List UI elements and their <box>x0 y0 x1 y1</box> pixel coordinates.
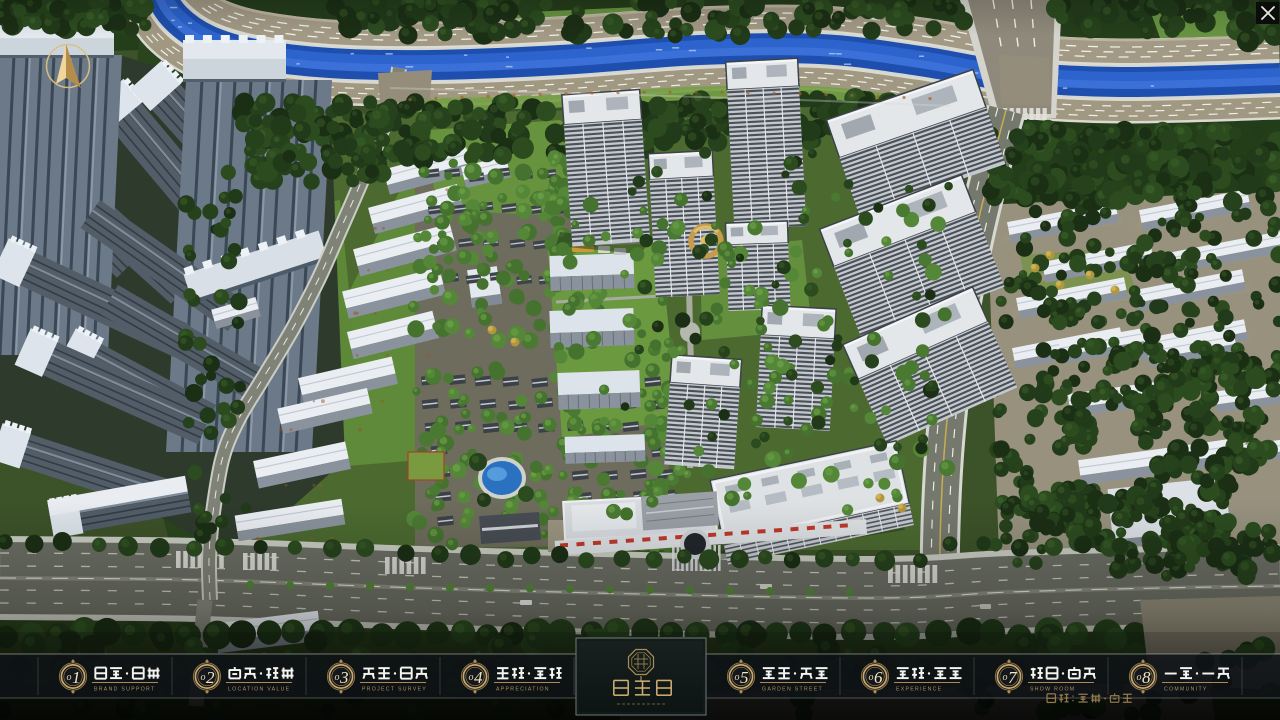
svg-text:1: 1 <box>72 668 81 687</box>
svg-text:GARDEN STREET: GARDEN STREET <box>762 687 823 693</box>
svg-text:o: o <box>869 672 874 683</box>
svg-text:APPRECIATION: APPRECIATION <box>496 687 550 693</box>
svg-text:BRAND SUPPORT: BRAND SUPPORT <box>94 687 155 693</box>
svg-text:COMMUNITY: COMMUNITY <box>1164 687 1208 693</box>
svg-text:o: o <box>735 672 740 683</box>
svg-text:SHOW ROOM: SHOW ROOM <box>1030 687 1075 693</box>
svg-text:2: 2 <box>206 668 215 687</box>
svg-text:EXPERIENCE: EXPERIENCE <box>896 687 942 693</box>
svg-text:LOCATION VALUE: LOCATION VALUE <box>228 687 290 693</box>
svg-text:o: o <box>201 672 206 683</box>
svg-text:o: o <box>1137 672 1142 683</box>
svg-text:4: 4 <box>474 668 483 687</box>
svg-text:6: 6 <box>874 668 883 687</box>
svg-text:o: o <box>469 672 474 683</box>
svg-text:PROJECT SURVEY: PROJECT SURVEY <box>362 687 427 693</box>
svg-text:5: 5 <box>740 668 749 687</box>
svg-text:o: o <box>335 672 340 683</box>
svg-text:o: o <box>1003 672 1008 683</box>
svg-text:o: o <box>67 672 72 683</box>
svg-text:3: 3 <box>339 668 349 687</box>
svg-text:8: 8 <box>1142 668 1151 687</box>
